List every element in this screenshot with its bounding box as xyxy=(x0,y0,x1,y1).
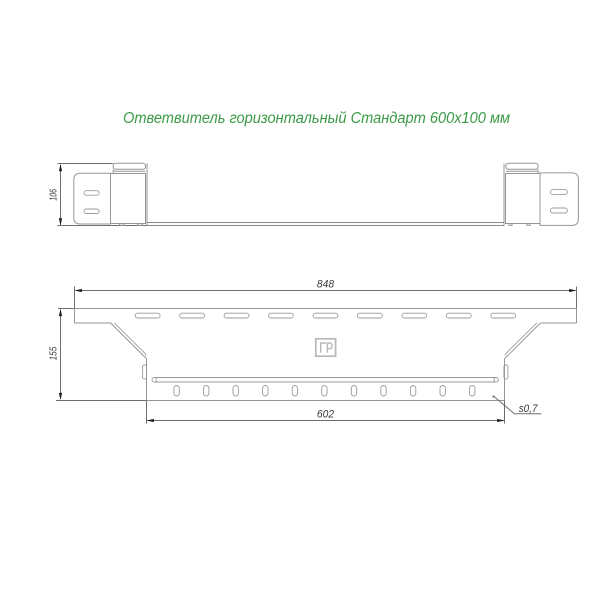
svg-text:848: 848 xyxy=(317,279,334,291)
svg-text:s0,7: s0,7 xyxy=(519,403,539,415)
svg-text:155: 155 xyxy=(48,346,59,360)
svg-text:Ответвитель горизонтальный Ста: Ответвитель горизонтальный Стандарт 600x… xyxy=(123,110,510,127)
svg-text:106: 106 xyxy=(48,189,59,201)
svg-text:602: 602 xyxy=(317,408,334,420)
